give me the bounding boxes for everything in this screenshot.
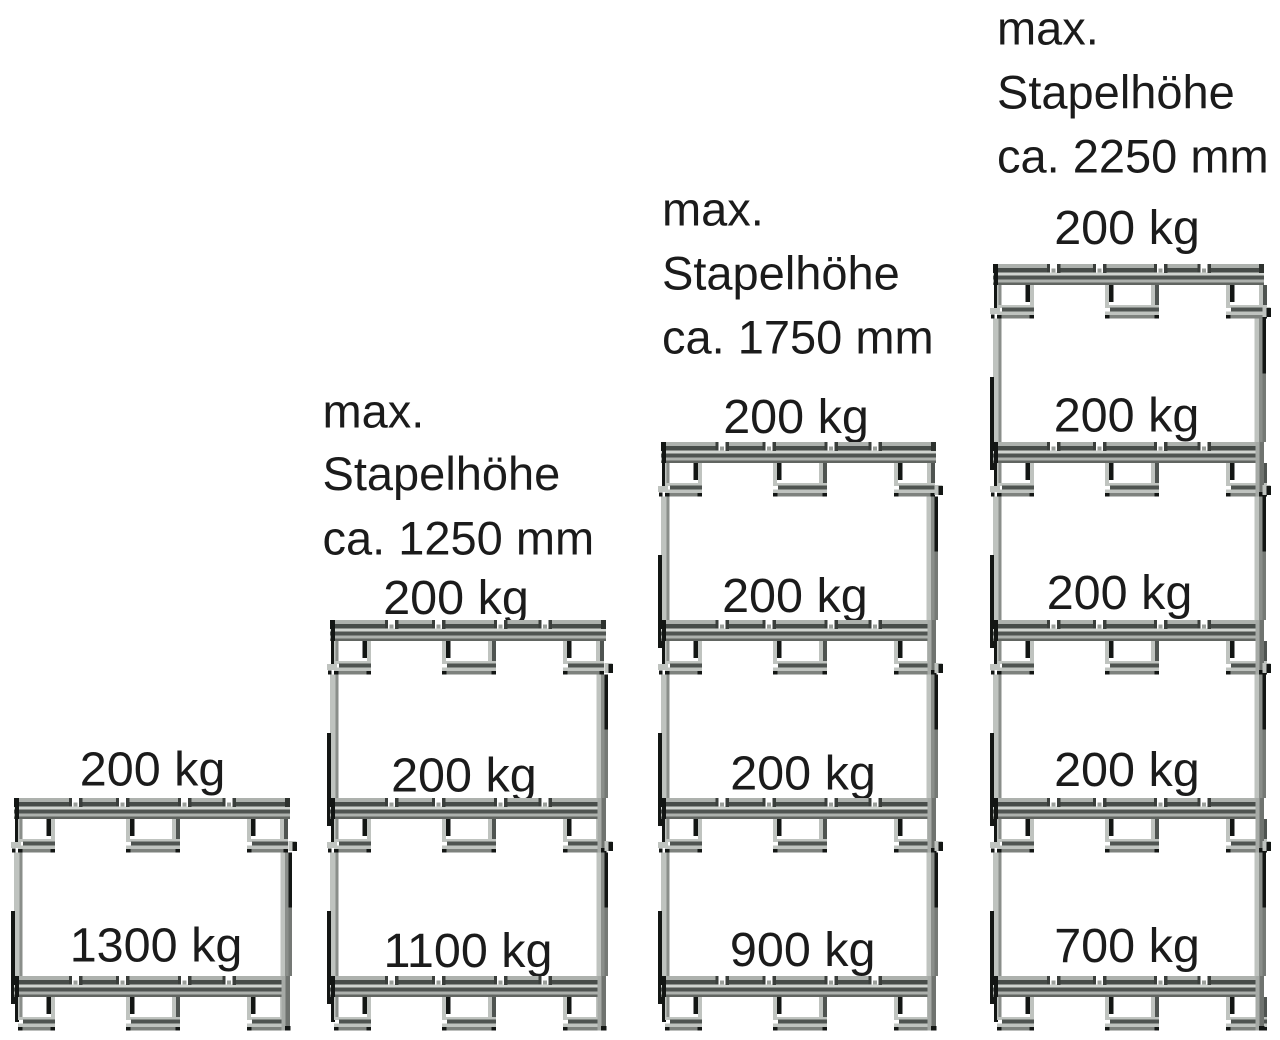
svg-text:200 kg: 200 kg [1054,743,1200,797]
svg-text:ca. 1750 mm: ca. 1750 mm [662,311,934,364]
svg-text:max.: max. [323,385,425,438]
svg-text:200 kg: 200 kg [80,742,226,796]
svg-text:900 kg: 900 kg [730,923,876,977]
svg-text:1100 kg: 1100 kg [384,924,553,978]
svg-text:200 kg: 200 kg [1054,201,1200,255]
svg-text:1300 kg: 1300 kg [70,918,243,972]
svg-text:ca. 2250 mm: ca. 2250 mm [997,130,1269,183]
svg-text:ca. 1250 mm: ca. 1250 mm [323,512,595,565]
svg-text:700 kg: 700 kg [1054,919,1200,973]
svg-text:200 kg: 200 kg [1054,389,1200,443]
svg-text:200 kg: 200 kg [730,746,876,800]
svg-text:200 kg: 200 kg [723,390,869,444]
svg-text:Stapelhöhe: Stapelhöhe [323,447,561,500]
svg-text:max.: max. [997,1,1099,54]
svg-text:200 kg: 200 kg [722,569,868,623]
svg-text:Stapelhöhe: Stapelhöhe [997,66,1235,119]
svg-text:max.: max. [662,183,764,236]
svg-text:200 kg: 200 kg [383,571,529,625]
svg-text:200 kg: 200 kg [1047,566,1193,620]
svg-text:Stapelhöhe: Stapelhöhe [662,247,900,300]
svg-text:200 kg: 200 kg [391,749,537,803]
